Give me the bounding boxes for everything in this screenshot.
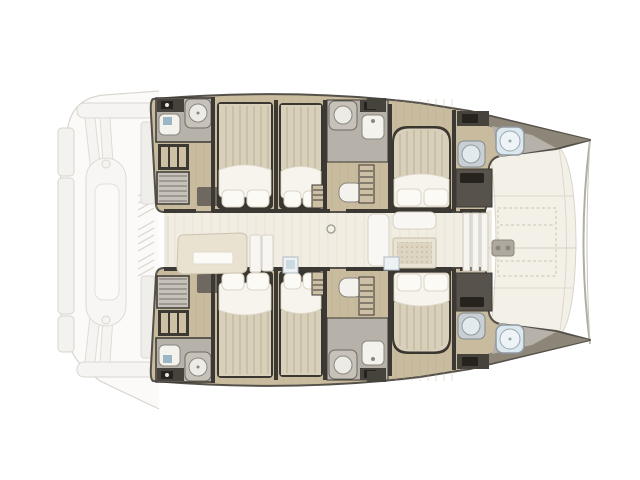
dinette-table-dots — [397, 242, 432, 264]
windlass-gypsy-icon — [496, 246, 501, 251]
galley-counter — [262, 235, 273, 271]
dinette-bench-top — [393, 212, 436, 229]
mast-foot-icon — [327, 225, 335, 233]
platform-segment — [58, 316, 74, 352]
fridge-door — [286, 260, 295, 269]
dinghy-interior — [95, 184, 119, 300]
transom-beam — [77, 362, 157, 377]
foredeck-door-panel — [481, 213, 488, 271]
anchor-windlass — [492, 240, 514, 256]
foredeck-door-panel — [463, 213, 470, 271]
foredeck-door-panel — [472, 213, 479, 271]
davit-fitting-icon — [102, 160, 110, 168]
galley-counter — [250, 235, 261, 272]
galley-sofa-table — [193, 252, 233, 264]
platform-segment — [58, 128, 74, 176]
davit-fitting-icon — [102, 316, 110, 324]
cool-box — [384, 257, 399, 270]
floor-plan-canvas — [0, 0, 640, 480]
platform-segment — [58, 178, 74, 314]
transom-beam — [77, 103, 157, 118]
catamaran-floor-plan — [0, 0, 640, 480]
foredeck — [486, 140, 590, 344]
windlass-gypsy-icon — [506, 246, 511, 251]
